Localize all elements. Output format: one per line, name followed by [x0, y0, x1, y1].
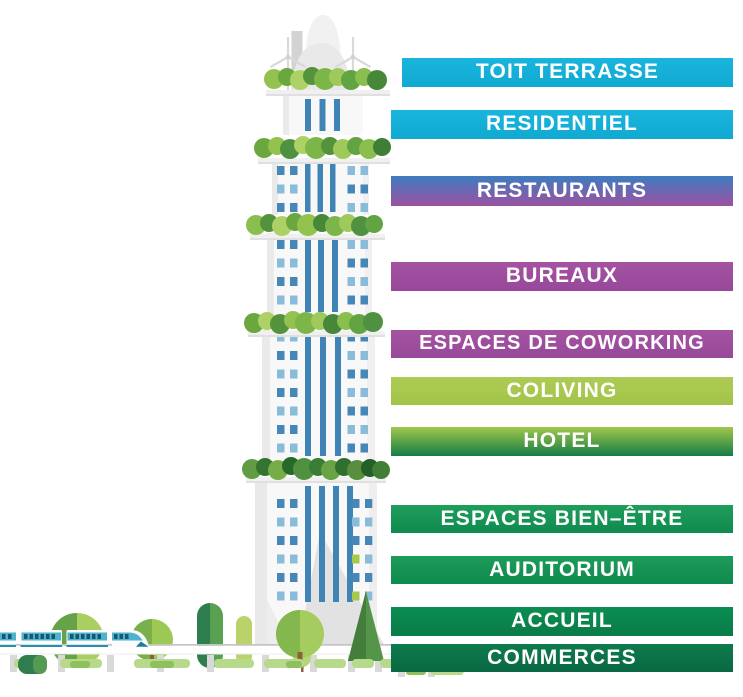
- building-section-top: [283, 92, 363, 135]
- building-section-c: [267, 233, 372, 315]
- bar-label: BUREAUX: [506, 265, 618, 286]
- windows-grid: [277, 486, 372, 603]
- bar-label: COMMERCES: [487, 647, 637, 668]
- windows-grid: [277, 163, 368, 212]
- bar-label: HOTEL: [523, 430, 600, 451]
- bar-label: ACCUEIL: [511, 610, 613, 631]
- label-bar-accueil: ACCUEIL: [391, 607, 733, 636]
- bar-label: TOIT TERRASSE: [476, 61, 659, 82]
- terrace-trees-row-2: [254, 136, 391, 164]
- bar-label: RESTAURANTS: [477, 180, 647, 201]
- terrace-trees-row-3: [246, 213, 385, 240]
- bar-label: COLIVING: [506, 380, 617, 401]
- label-bar-auditorium: AUDITORIUM: [391, 556, 733, 584]
- label-bar-toit-terrasse: TOIT TERRASSE: [402, 58, 733, 87]
- bar-label: AUDITORIUM: [489, 559, 635, 580]
- green-window: [352, 592, 360, 601]
- label-bar-commerces: COMMERCES: [391, 644, 733, 672]
- label-bar-espaces-bien-etre: ESPACES BIEN–ÊTRE: [391, 505, 733, 533]
- label-bar-hotel: HOTEL: [391, 427, 733, 456]
- label-bar-bureaux: BUREAUX: [391, 262, 733, 291]
- bar-label: ESPACES DE COWORKING: [419, 333, 705, 353]
- label-bar-residentiel: RESIDENTIEL: [391, 110, 733, 139]
- terrace-trees-row-1: [264, 67, 390, 96]
- bar-label: ESPACES BIEN–ÊTRE: [441, 508, 684, 529]
- building-section-b: [272, 158, 369, 215]
- bar-label: RESIDENTIEL: [486, 113, 638, 134]
- windows-grid: [305, 99, 340, 131]
- terrace-trees-row-5: [242, 457, 390, 483]
- train: [0, 630, 149, 647]
- windows-grid: [277, 237, 368, 312]
- windows-grid: [277, 332, 368, 456]
- label-bar-espaces-de-coworking: ESPACES DE COWORKING: [391, 330, 733, 358]
- green-window: [352, 555, 360, 564]
- label-bar-restaurants: RESTAURANTS: [391, 176, 733, 206]
- tower-program-diagram: TOIT TERRASSE RESIDENTIEL RESTAURANTS BU…: [0, 0, 743, 697]
- building-section-d: [262, 330, 375, 460]
- label-bar-coliving: COLIVING: [391, 377, 733, 405]
